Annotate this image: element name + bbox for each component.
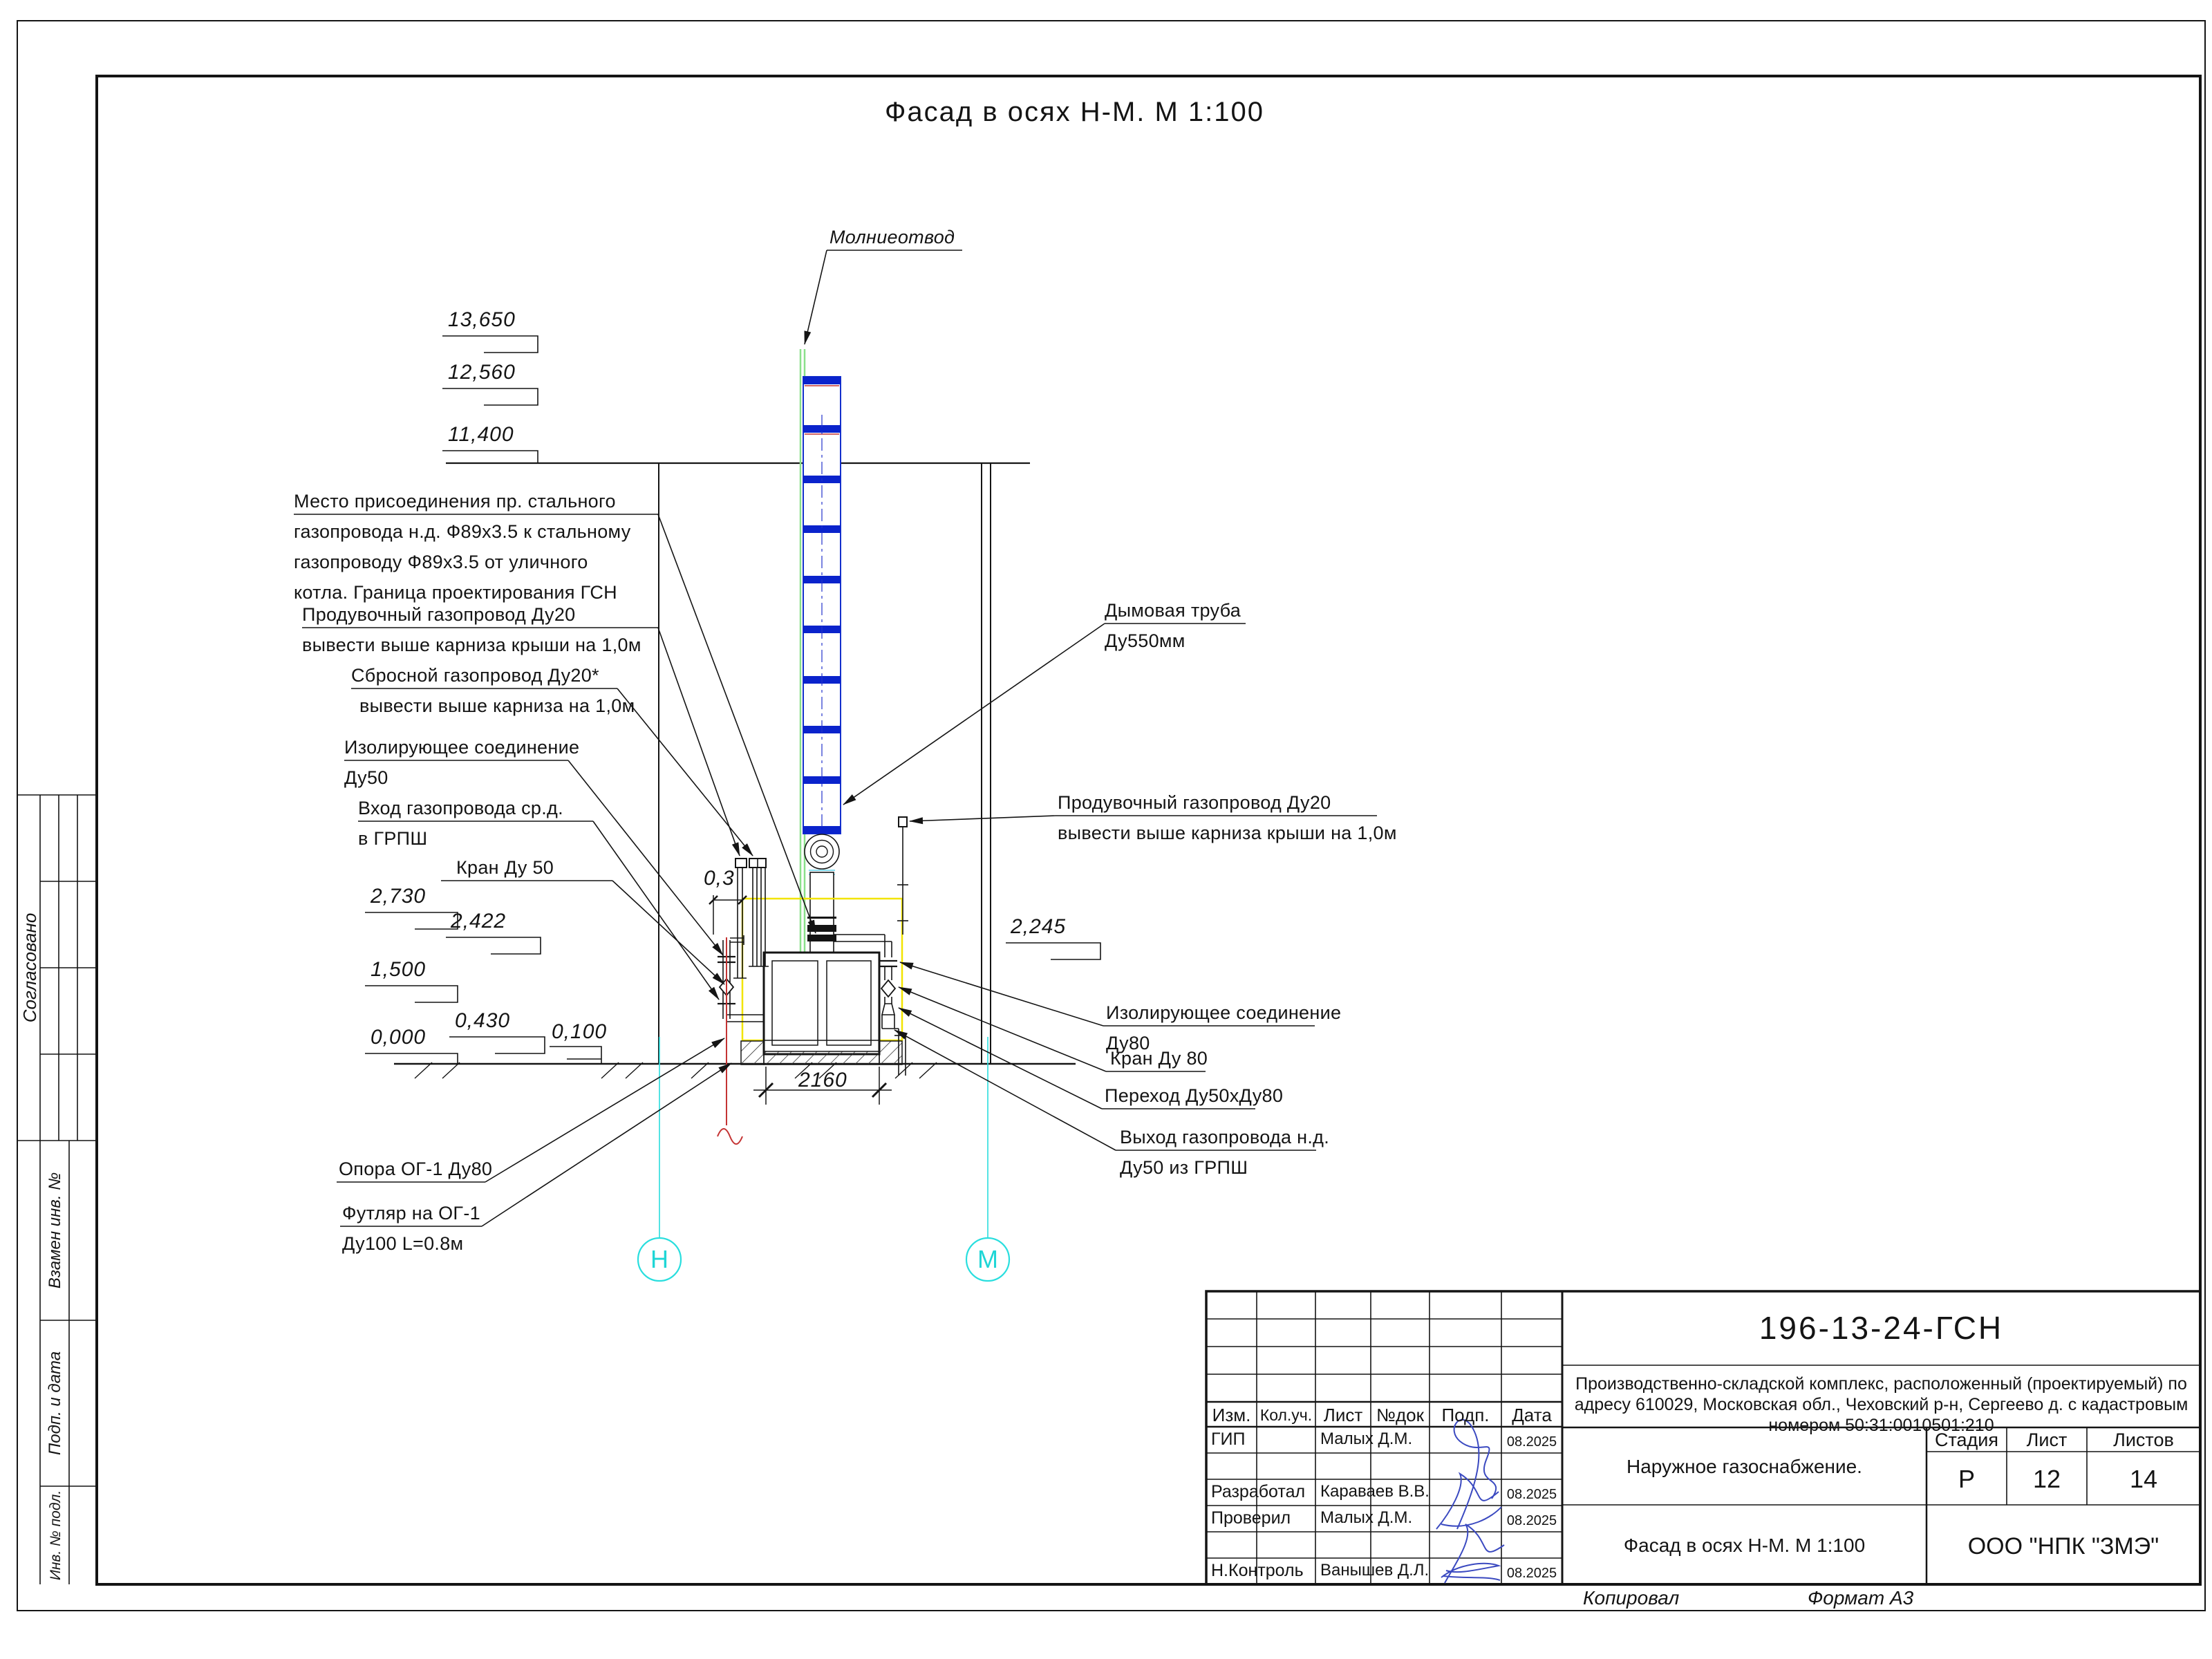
- dim-gap: 0,3: [704, 868, 735, 889]
- titleblock-row-check-role: Проверил: [1211, 1510, 1291, 1527]
- titleblock-sheets-header: Листов: [2087, 1431, 2200, 1450]
- callout-casing-2: Ду100 L=0.8м: [342, 1235, 463, 1253]
- titleblock-row-dev-role: Разработал: [1211, 1483, 1305, 1501]
- titleblock-section-title: Наружное газоснабжение.: [1562, 1457, 1927, 1477]
- drawing-sheet: Фасад в осях Н-М. М 1:100 Молниеотвод 13…: [0, 0, 2212, 1659]
- elevation-0430: 0,430: [455, 1011, 510, 1031]
- titleblock-col-izm: Изм.: [1206, 1406, 1257, 1424]
- titleblock-row-dev-date: 08.2025: [1501, 1488, 1562, 1501]
- callout-inlet-1: Вход газопровода ср.д.: [358, 799, 563, 818]
- callout-connect-3: газопроводу Ф89х3.5 от уличного: [294, 553, 588, 572]
- titleblock-row-gip-date: 08.2025: [1501, 1435, 1562, 1449]
- copied-label: Копировал: [1583, 1588, 1679, 1608]
- elevation-11400: 11,400: [448, 424, 514, 445]
- chimney: [803, 377, 841, 953]
- titleblock-col-list: Лист: [1315, 1406, 1371, 1424]
- sidebar-sign-date: Подп. и дата: [47, 1324, 64, 1483]
- elevation-1500: 1,500: [371, 959, 426, 980]
- callout-valve50: Кран Ду 50: [456, 859, 554, 877]
- titleblock-company: ООО "НПК "ЗМЭ": [1927, 1535, 2200, 1558]
- titleblock-col-dok: №док: [1371, 1406, 1430, 1424]
- format-label: Формат А3: [1808, 1588, 1913, 1608]
- titleblock-project-2: адресу 610029, Московская обл., Чеховски…: [1569, 1396, 2193, 1414]
- titleblock-row-gip-name: Малых Д.М.: [1320, 1431, 1412, 1447]
- sidebar-replace-inv: Взамен инв. №: [47, 1144, 64, 1317]
- titleblock-row-check-date: 08.2025: [1501, 1514, 1562, 1528]
- titleblock-col-koluch: Кол.уч.: [1257, 1407, 1315, 1423]
- callout-reducer: Переход Ду50хДу80: [1105, 1087, 1283, 1105]
- elevation-2422: 2,422: [451, 911, 506, 932]
- titleblock-stage-header: Стадия: [1927, 1431, 2007, 1450]
- sidebar-inv-no: Инв. № подл.: [48, 1489, 63, 1582]
- callout-insul80-1: Изолирующее соединение: [1106, 1004, 1341, 1022]
- page-title: Фасад в осях Н-М. М 1:100: [885, 98, 1196, 126]
- callout-insul50-2: Ду50: [344, 769, 388, 787]
- axis-label-m: М: [960, 1247, 1015, 1272]
- callout-connect-4: котла. Граница проектирования ГСН: [294, 583, 617, 602]
- callout-flue-1: Дымовая труба: [1105, 601, 1241, 620]
- titleblock-row-ncontrol-role: Н.Контроль: [1211, 1562, 1304, 1580]
- elevation-2245: 2,245: [1011, 917, 1066, 937]
- callout-casing-1: Футляр на ОГ-1: [342, 1204, 480, 1223]
- callout-purge-left-1: Продувочный газопровод Ду20: [302, 606, 575, 624]
- titleblock-row-ncontrol-date: 08.2025: [1501, 1566, 1562, 1580]
- titleblock-sheet-header: Лист: [2007, 1431, 2087, 1450]
- titleblock-row-check-name: Малых Д.М.: [1320, 1510, 1412, 1526]
- titleblock-row-dev-name: Караваев В.В.: [1320, 1483, 1430, 1500]
- elevation-13650: 13,650: [448, 310, 516, 330]
- titleblock-doc-number: 196-13-24-ГСН: [1562, 1312, 2200, 1344]
- elevation-2730: 2,730: [371, 886, 426, 907]
- callout-purge-left-2: вывести выше карниза крыши на 1,0м: [302, 636, 641, 655]
- elevation-0000: 0,000: [371, 1027, 426, 1048]
- callout-connect-1: Место присоединения пр. стального: [294, 492, 616, 511]
- titleblock-col-data: Дата: [1501, 1406, 1562, 1424]
- callout-purge-right-1: Продувочный газопровод Ду20: [1058, 794, 1331, 812]
- lightning-label: Молниеотвод: [829, 228, 955, 247]
- callout-insul50-1: Изолирующее соединение: [344, 738, 579, 757]
- titleblock-col-podp: Подп.: [1430, 1406, 1501, 1424]
- elevation-12560: 12,560: [448, 362, 516, 383]
- titleblock-sheets-value: 14: [2087, 1467, 2200, 1492]
- callout-flue-2: Ду550мм: [1105, 632, 1185, 650]
- elevation-0100: 0,100: [552, 1022, 607, 1042]
- callout-relief-2: вывести выше карниза на 1,0м: [359, 697, 635, 715]
- callout-purge-right-2: вывести выше карниза крыши на 1,0м: [1058, 824, 1397, 843]
- callout-support: Опора ОГ-1 Ду80: [339, 1160, 492, 1179]
- axis-label-n: Н: [632, 1247, 687, 1272]
- callout-relief-1: Сбросной газопровод Ду20*: [351, 666, 599, 685]
- titleblock-row-gip-role: ГИП: [1211, 1431, 1245, 1448]
- dim-width: 2160: [798, 1070, 847, 1091]
- titleblock-sheet-value: 12: [2007, 1467, 2087, 1492]
- callout-outlet-1: Выход газопровода н.д.: [1120, 1128, 1329, 1147]
- callout-inlet-2: в ГРПШ: [358, 829, 427, 848]
- sidebar-agreed: Согласовано: [21, 795, 39, 1141]
- titleblock-drawing-title: Фасад в осях Н-М. М 1:100: [1562, 1536, 1927, 1555]
- titleblock-row-ncontrol-name: Ванышев Д.Л.: [1320, 1562, 1429, 1579]
- callout-valve80: Кран Ду 80: [1110, 1049, 1208, 1068]
- callout-connect-2: газопровода н.д. Ф89х3.5 к стальному: [294, 523, 631, 541]
- callout-outlet-2: Ду50 из ГРПШ: [1120, 1159, 1248, 1177]
- titleblock-project-1: Производственно-складской комплекс, расп…: [1569, 1376, 2193, 1393]
- titleblock-stage-value: Р: [1927, 1467, 2007, 1492]
